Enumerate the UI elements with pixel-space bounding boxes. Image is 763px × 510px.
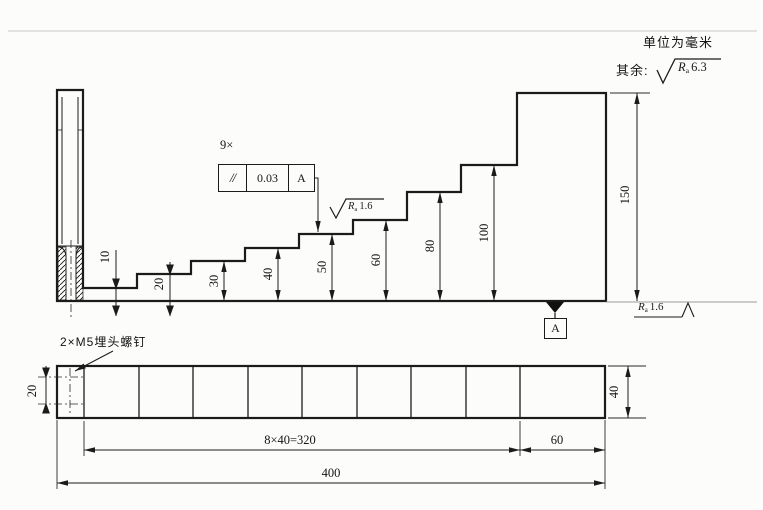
bottom-roughness-value: Ra1.6 xyxy=(638,301,664,314)
screw-note: 2×M5埋头螺钉 xyxy=(60,336,146,349)
screw-note-leader xyxy=(75,351,113,371)
roughness-sub: a xyxy=(354,206,357,213)
dim-30: 30 xyxy=(206,261,222,301)
dim-step-pitch: 8×40=320 xyxy=(220,434,360,448)
datum-letter: A xyxy=(551,321,560,336)
engineering-drawing: 单位为毫米 其余: Ra6.3 9× // 0.03 A Ra1.6 Ra1.6… xyxy=(0,0,763,510)
height-dimensions xyxy=(113,93,650,316)
dim-end-segment: 60 xyxy=(527,434,587,448)
roughness-number: 1.6 xyxy=(650,301,664,313)
roughness-letter: R xyxy=(638,301,645,313)
tolerance-value: 0.03 xyxy=(247,165,289,191)
dim-50: 50 xyxy=(314,247,330,287)
roughness-sub: a xyxy=(645,307,648,314)
roughness-number: 1.6 xyxy=(359,201,372,212)
tolerance-count-note: 9× xyxy=(220,139,233,153)
dim-overall-length: 400 xyxy=(281,467,381,481)
dim-60: 60 xyxy=(368,240,384,280)
plan-view-outline xyxy=(57,366,605,418)
dim-plan-width: 40 xyxy=(606,372,622,412)
dim-80: 80 xyxy=(422,226,438,266)
roughness-number: 6.3 xyxy=(691,60,707,74)
dim-screw-spacing: 20 xyxy=(24,371,40,411)
dim-100: 100 xyxy=(476,213,492,253)
datum-label-box: A xyxy=(544,318,567,339)
datum-triangle-icon xyxy=(546,302,564,318)
roughness-letter: R xyxy=(678,60,686,74)
dim-10: 10 xyxy=(97,237,113,277)
default-roughness-value: Ra6.3 xyxy=(678,61,707,76)
tolerance-frame: // 0.03 A xyxy=(218,164,315,192)
dim-20: 20 xyxy=(151,264,167,304)
dim-40: 40 xyxy=(260,254,276,294)
default-roughness-prefix: 其余: xyxy=(616,64,649,78)
roughness-sub: a xyxy=(686,66,689,75)
parallelism-symbol: // xyxy=(219,165,247,191)
unit-note: 单位为毫米 xyxy=(558,36,713,50)
step-roughness-value: Ra1.6 xyxy=(348,201,372,213)
tolerance-datum-ref: A xyxy=(289,165,314,191)
countersunk-screw-section xyxy=(57,240,83,317)
dim-150: 150 xyxy=(617,175,633,215)
